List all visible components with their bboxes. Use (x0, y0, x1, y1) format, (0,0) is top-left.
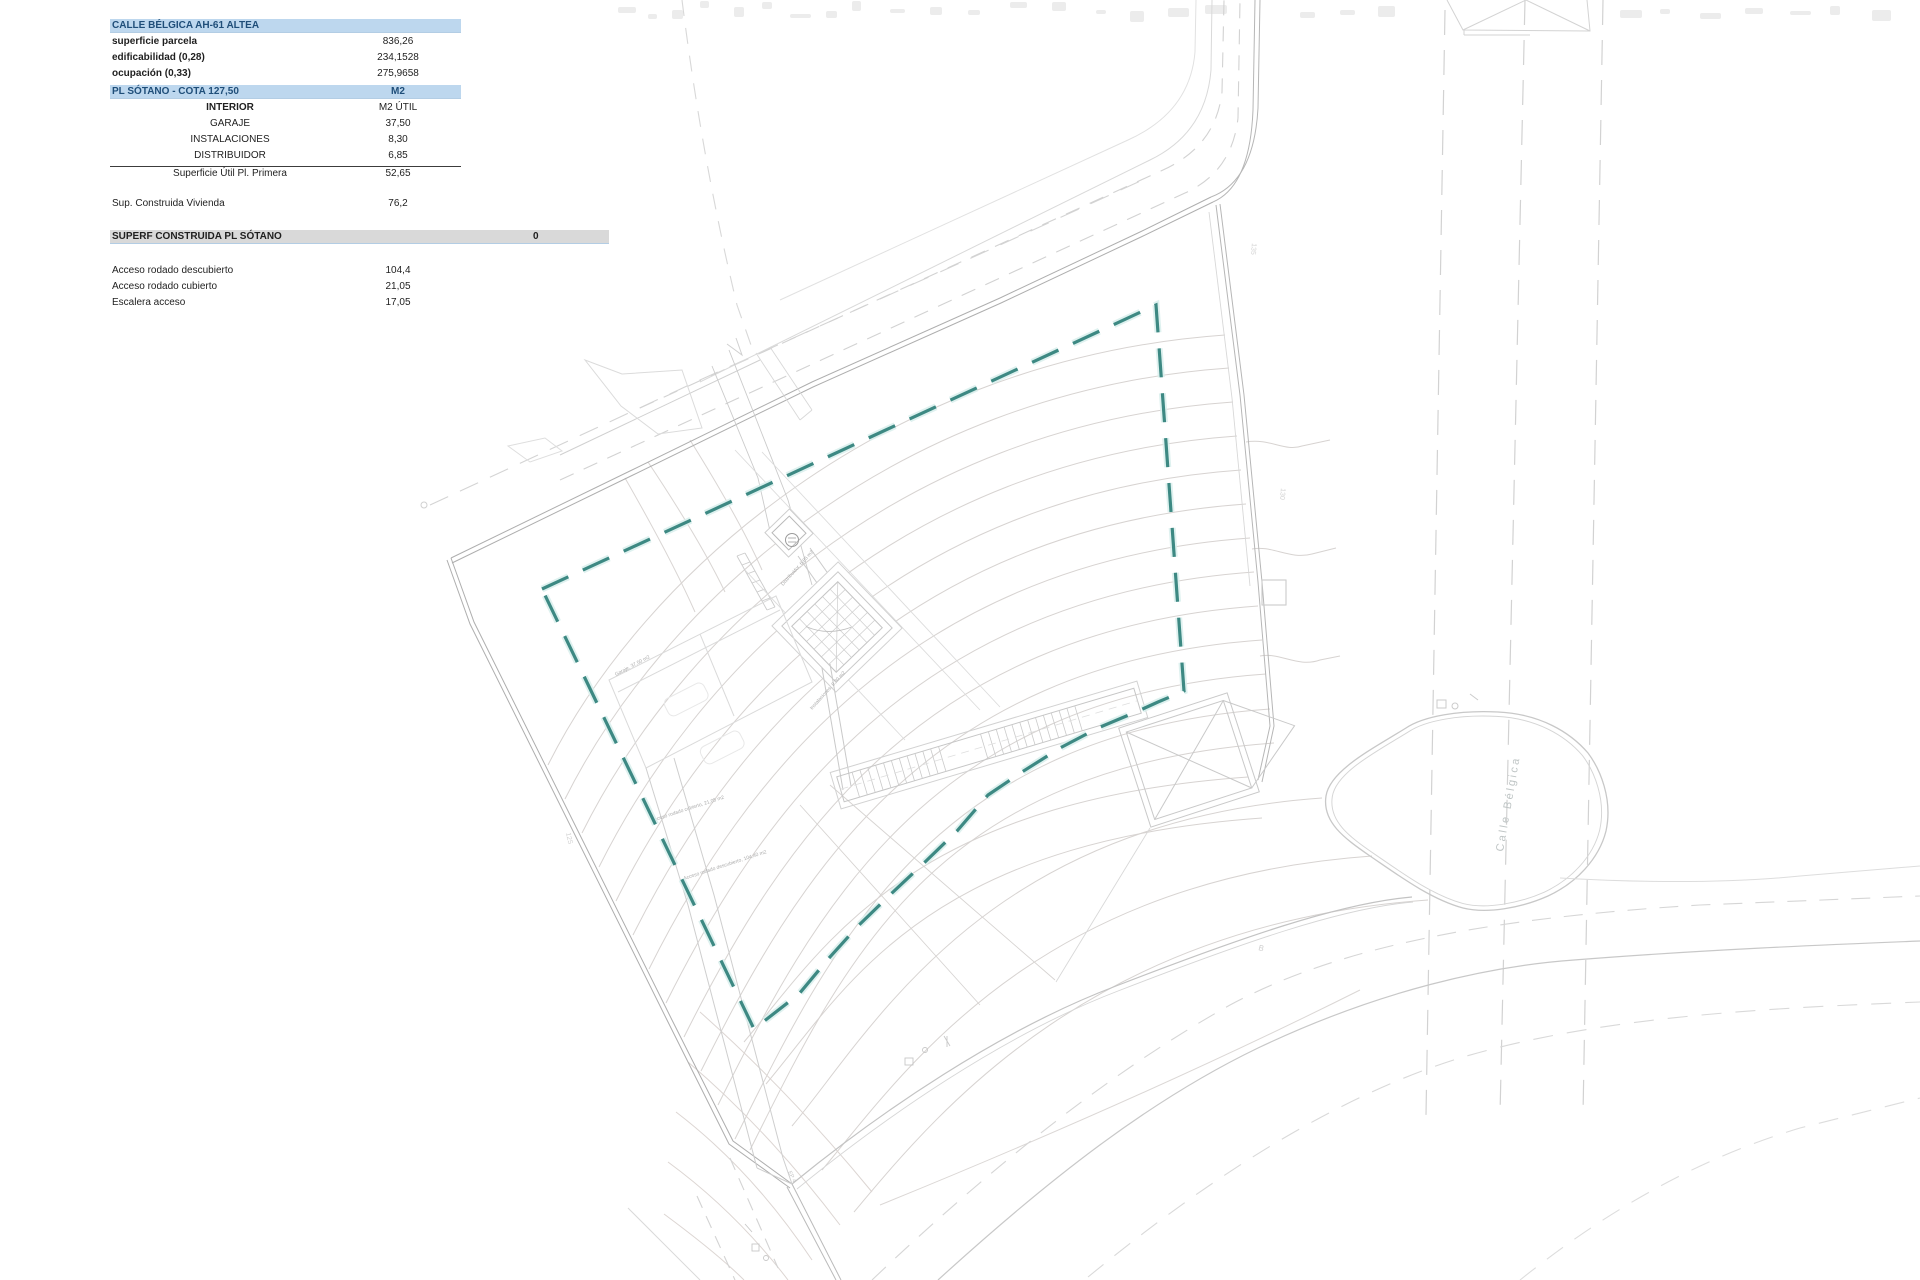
svg-text:130: 130 (1278, 488, 1286, 500)
svg-text:B: B (1258, 943, 1265, 953)
svg-text:Calle Bélgica: Calle Bélgica (1494, 755, 1523, 852)
svg-text:Acceso rodado cubierto, 21,05: Acceso rodado cubierto, 21,05 m2 (651, 795, 725, 824)
svg-text:Distribuidor, 6,85 m2: Distribuidor, 6,85 m2 (780, 549, 815, 587)
svg-text:135: 135 (1249, 243, 1257, 255)
svg-text:Acceso rodado descubierto, 104: Acceso rodado descubierto, 104,40 m2 (683, 849, 768, 882)
svg-text:125: 125 (564, 832, 573, 845)
